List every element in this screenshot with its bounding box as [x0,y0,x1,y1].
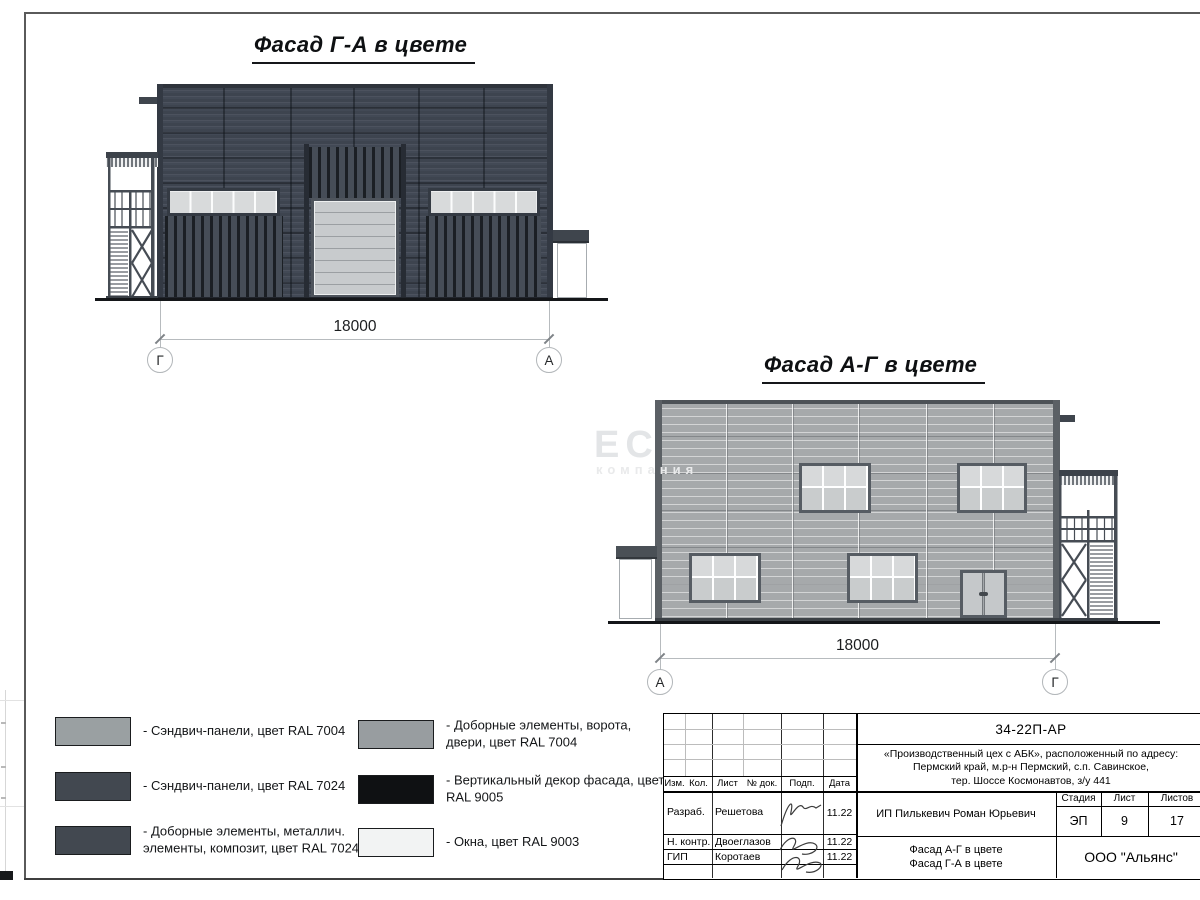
tb-sheet-label: Лист [1101,791,1148,806]
tb-stage-value: ЭП [1056,806,1101,836]
margin-line [5,690,6,880]
axis-bubble: А [647,669,673,695]
gate-pilaster [401,144,406,297]
tb-role: Разраб. [667,806,705,818]
dimension-line [160,339,550,340]
tb-col-izm: Изм. [664,776,685,791]
signature [776,794,822,832]
tb-project-line: «Производственный цех с АБК», расположен… [884,748,1178,762]
panel-seam [926,404,928,618]
axis-bubble: Г [147,347,173,373]
tb-col-podp: Подп. [781,776,823,791]
drawing-sheet: Фасад Г-А в цвете [0,0,1200,900]
panel-seam [418,88,420,297]
tb-col-data: Дата [823,776,856,791]
tb-date: 11.22 [823,849,856,864]
corner-column [547,84,553,300]
margin-divider [0,700,24,701]
margin-mark [1,766,6,768]
signature [774,832,826,878]
tb-company: ООО "Альянс" [1056,836,1200,878]
legend-swatch [358,828,434,857]
margin-mark [1,722,6,724]
sectional-gate [311,198,399,298]
tb-sheet-title-line: Фасад Г-А в цвете [909,857,1002,872]
window-lower-middle [847,553,918,603]
legend-label: - Доборные элементы, ворота, двери, цвет… [446,718,666,751]
external-stair-left [106,152,158,300]
side-canopy [553,230,589,243]
legend-swatch [55,717,131,746]
watermark-caption: компания [596,462,698,477]
legend-swatch [55,772,131,801]
door-handles [979,592,988,596]
legend-label: - Доборные элементы, металлич. элементы,… [143,824,371,857]
tb-sheet-title-line: Фасад А-Г в цвете [909,843,1002,858]
window-upper-right [957,463,1027,513]
tb-name: Решетова [715,806,763,818]
side-canopy [616,546,657,559]
tb-sheet-title: Фасад А-Г в цвете Фасад Г-А в цвете [856,836,1056,878]
tb-col-list: Лист [712,776,743,791]
tb-project-line: тер. Шоссе Космонавтов, з/у 441 [951,775,1111,789]
entrance-double-door [960,570,1007,618]
legend-label: - Сэндвич-панели, цвет RAL 7004 [143,723,371,740]
tb-date: 11.22 [823,791,856,834]
frame-top-line [24,12,1200,14]
tb-role: Н. контр. [667,836,710,848]
frame-left-line [24,12,26,880]
tb-role: ГИП [667,851,688,863]
vertical-decor-right [426,216,541,297]
window-band-left [167,188,280,216]
panel-seam [290,88,292,297]
dimension-line [660,658,1055,659]
extension-line [1055,624,1056,670]
tb-doc-number: 34-22П-АР [856,714,1200,744]
legend-label: - Вертикальный декор фасада, цвет RAL 90… [446,773,666,806]
margin-divider [0,806,24,807]
tb-col-kol: Кол. [685,776,712,791]
ground-line [608,621,1160,624]
facade-ag-drawing [655,400,1060,622]
dimension-value: 18000 [160,318,550,336]
window-upper-left [799,463,871,513]
window-band-right [428,188,540,216]
ground-line [95,298,608,301]
tb-col-ndok: № док. [743,776,781,791]
corner-mark [0,871,13,880]
dimension-value: 18000 [660,637,1055,655]
tb-sheet-value: 9 [1101,806,1148,836]
parapet-strip [157,84,553,88]
facade-ag-title: Фасад А-Г в цвете [762,352,985,384]
tb-project-line: Пермский край, м.р-н Пермский, с.п. Сави… [913,761,1149,775]
vertical-decor-center [309,147,401,198]
facade-ga-title: Фасад Г-А в цвете [252,32,475,64]
tb-date: 11.22 [823,834,856,849]
tb-sheets-label: Листов [1148,791,1200,806]
tb-stage-label: Стадия [1056,791,1101,806]
tb-name: Коротаев [715,851,760,863]
tb-client: ИП Пилькевич Роман Юрьевич [856,791,1056,836]
panel-seam [792,404,794,618]
legend-swatch [358,775,434,804]
watermark-logo: ЕС [594,424,659,467]
legend-swatch [55,826,131,855]
legend-swatch [358,720,434,749]
axis-bubble: А [536,347,562,373]
window-lower-left [689,553,761,603]
external-stair-right [1059,470,1118,622]
side-door-outline [557,243,587,298]
tb-sheets-value: 17 [1148,806,1200,836]
axis-bubble: Г [1042,669,1068,695]
facade-ga-roof-ledge [139,97,158,104]
vertical-decor-left [165,216,283,297]
tb-project: «Производственный цех с АБК», расположен… [856,745,1200,791]
facade-ga-drawing [157,84,553,300]
legend-label: - Окна, цвет RAL 9003 [446,834,666,851]
side-door-outline [619,559,652,619]
margin-mark [1,797,6,799]
tb-name: Двоеглазов [715,836,771,848]
title-block: Изм. Кол. Лист № док. Подп. Дата Разраб.… [663,713,1200,880]
legend-label: - Сэндвич-панели, цвет RAL 7024 [143,778,371,795]
